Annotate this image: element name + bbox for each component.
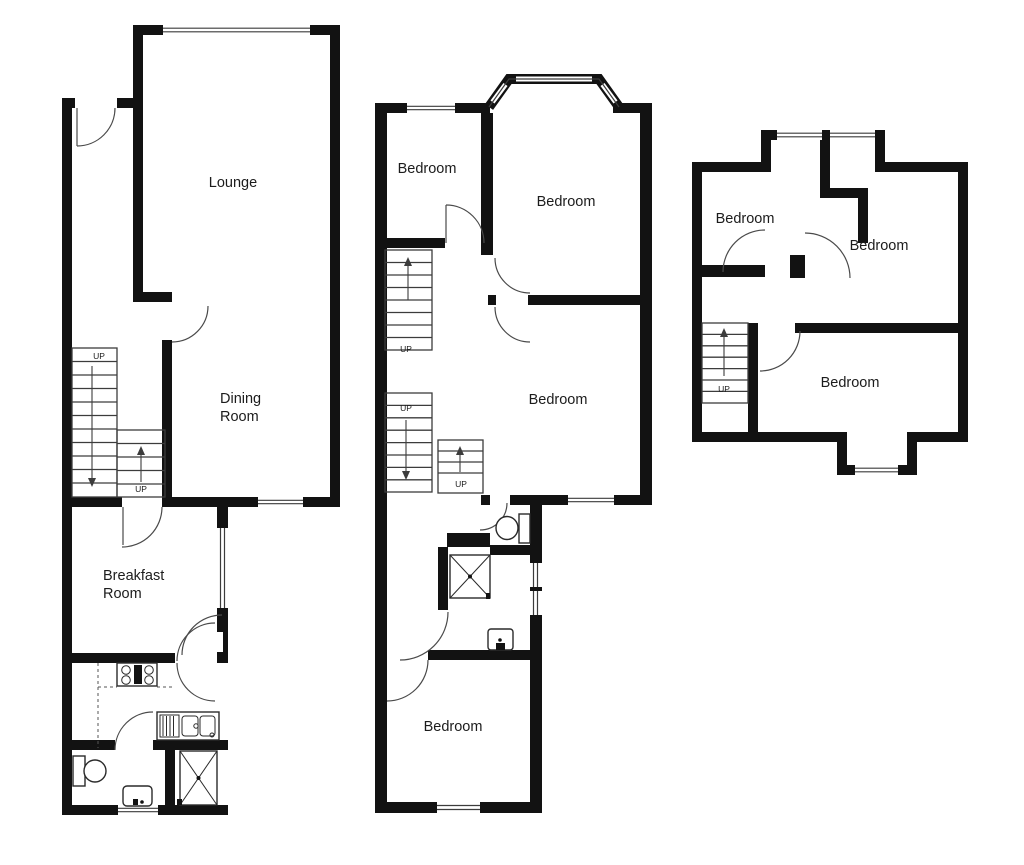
- bedroom3-door: [760, 331, 800, 371]
- kitchen-door: [177, 623, 215, 701]
- second-windows: [777, 130, 898, 475]
- kitchen-fixtures: [98, 663, 219, 748]
- breakfast-door: [122, 497, 162, 547]
- second-staircase: UP: [702, 323, 748, 403]
- first-bedroom1-label: Bedroom: [398, 161, 457, 177]
- ground-floor-plan: UP UP: [62, 25, 340, 815]
- first-bedroom2-label: Bedroom: [537, 194, 596, 210]
- ground-doors: [75, 98, 223, 750]
- second-doors: [723, 230, 850, 371]
- first-bedroom3-label: Bedroom: [529, 392, 588, 408]
- second-bedroom3-label: Bedroom: [821, 375, 880, 391]
- ground-up-label-2: UP: [135, 484, 147, 494]
- dormer-window-left: [777, 130, 822, 140]
- first-bedroom4-label: Bedroom: [424, 719, 483, 735]
- hob: [117, 663, 157, 686]
- ground-bathroom-fixtures: [73, 751, 217, 806]
- shower: [450, 555, 490, 599]
- lounge-label: Lounge: [209, 175, 257, 191]
- second-bedroom1-label: Bedroom: [716, 211, 775, 227]
- bathroom-door: [115, 712, 153, 750]
- hall-door: [172, 306, 208, 342]
- sink-unit: [157, 712, 219, 740]
- floorplan-drawing: UP UP: [0, 0, 1024, 865]
- floorplan-page: UP UP: [0, 0, 1024, 865]
- breakfast-window: [217, 528, 228, 608]
- first-up-label-3: UP: [455, 479, 467, 489]
- first-walls: [375, 103, 652, 813]
- ground-windows: [118, 25, 310, 815]
- breakfast-room-label-2: Room: [103, 586, 142, 602]
- bedroom3-window: [568, 495, 614, 505]
- back-door: [182, 615, 223, 655]
- bedroom4-window: [437, 802, 480, 813]
- bedroom1-window: [407, 103, 455, 113]
- breakfast-room-label-1: Breakfast: [103, 568, 164, 584]
- dormer-window-right: [830, 130, 875, 140]
- basin: [488, 629, 513, 650]
- lounge-window: [163, 25, 310, 35]
- ground-up-label-1: UP: [93, 351, 105, 361]
- dining-room-label-2: Room: [220, 409, 259, 425]
- first-floor-plan: UP UP UP: [375, 79, 652, 813]
- toilet: [496, 514, 530, 543]
- first-staircase: UP UP UP: [385, 250, 483, 493]
- shower: [177, 751, 217, 805]
- bay-window: [489, 79, 619, 107]
- second-bedroom2-label: Bedroom: [850, 238, 909, 254]
- ground-walls: [62, 25, 340, 815]
- second-walls: [692, 130, 968, 475]
- bedroom4-door: [387, 660, 428, 701]
- bedroom2-door: [495, 258, 530, 293]
- bedroom3-door: [495, 295, 530, 342]
- toilet: [73, 756, 106, 786]
- bedroom1-door: [446, 205, 484, 243]
- basin: [123, 786, 152, 806]
- second-floor-plan: UP Bedroom Bedroom Bedroom: [692, 130, 968, 475]
- dining-room-label-1: Dining: [220, 391, 261, 407]
- front-door: [75, 98, 117, 146]
- second-up-label: UP: [718, 384, 730, 394]
- first-up-label-1: UP: [400, 344, 412, 354]
- ground-staircase: UP UP: [72, 348, 165, 497]
- rear-dormer-window: [855, 465, 898, 475]
- dining-window: [258, 497, 303, 507]
- first-up-label-2: UP: [400, 403, 412, 413]
- bedroom2-door: [805, 233, 850, 278]
